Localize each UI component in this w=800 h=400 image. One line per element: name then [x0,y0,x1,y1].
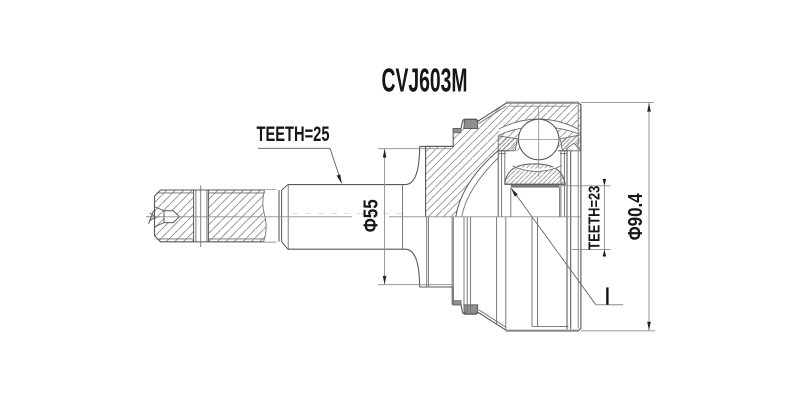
svg-text:Φ55: Φ55 [361,199,383,232]
svg-text:CVJ603M: CVJ603M [382,62,468,99]
svg-text:Φ90.4: Φ90.4 [625,193,647,241]
svg-text:TEETH=23: TEETH=23 [586,186,603,250]
svg-text:TEETH=25: TEETH=25 [257,123,330,146]
